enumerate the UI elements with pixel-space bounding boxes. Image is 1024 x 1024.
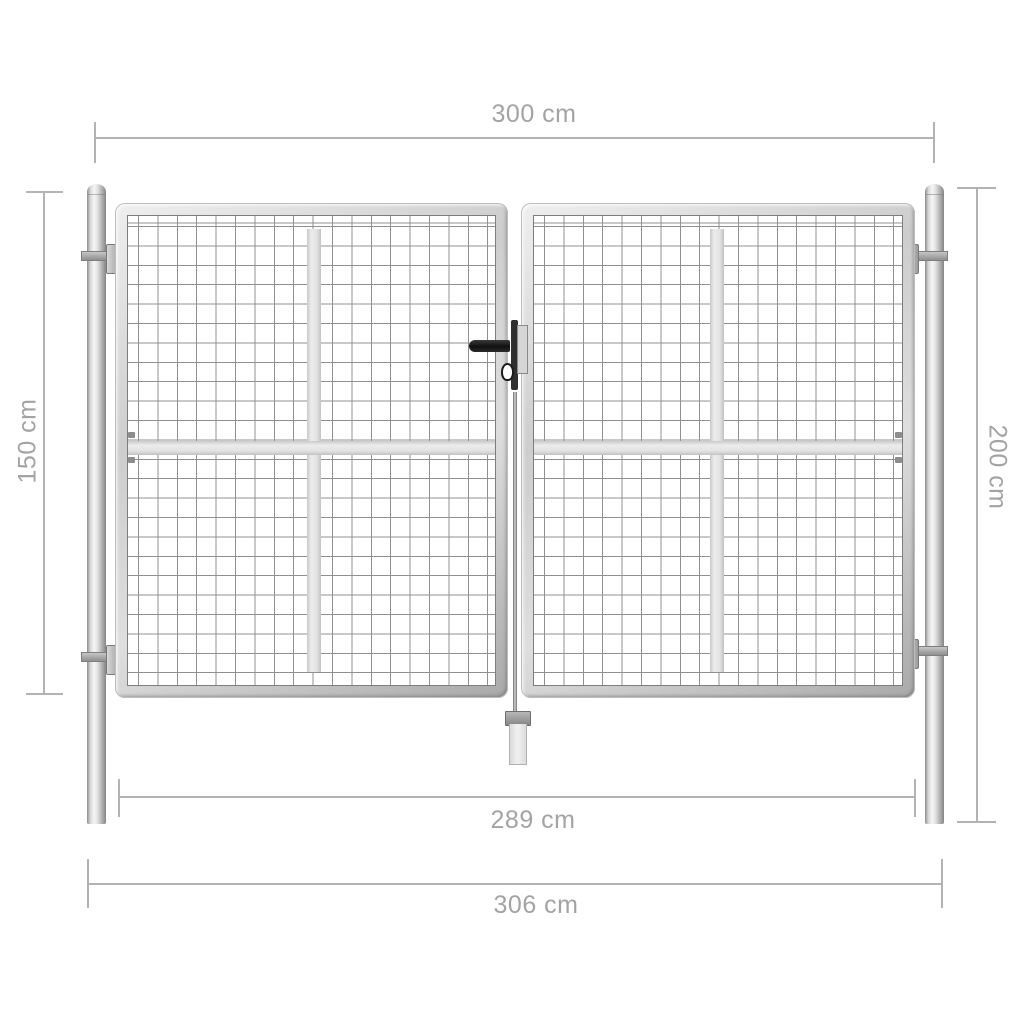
dim-label-inner-width: 289 cm xyxy=(491,806,576,835)
left-leaf-mesh xyxy=(127,215,496,686)
right-gate-leaf xyxy=(521,203,915,698)
dim-line-left xyxy=(43,192,45,694)
dim-line-inner xyxy=(119,796,916,798)
right-leaf-brace-clamp-top xyxy=(895,432,902,438)
dim-tick-outer-right xyxy=(941,859,943,908)
right-leaf-mesh xyxy=(533,215,903,686)
left-leaf-brace-clamp-bottom xyxy=(128,457,135,463)
right-post-cap-seam xyxy=(926,194,943,195)
dim-tick-top-left xyxy=(94,122,96,163)
dim-line-top xyxy=(95,137,934,139)
dim-label-top-width: 300 cm xyxy=(492,100,577,129)
dim-tick-inner-right xyxy=(914,779,916,817)
dim-tick-left-bottom xyxy=(26,693,63,695)
dim-tick-right-bottom xyxy=(957,821,996,823)
dim-tick-inner-left xyxy=(118,779,120,817)
ground-sleeve xyxy=(509,724,527,765)
dim-tick-right-top xyxy=(957,187,996,189)
drop-rod xyxy=(513,392,517,714)
left-post-cap-seam xyxy=(88,194,105,195)
dim-tick-outer-left xyxy=(87,859,89,908)
dim-tick-left-top xyxy=(26,191,63,193)
dim-line-outer xyxy=(88,883,943,885)
dim-label-gate-height: 150 cm xyxy=(14,399,43,484)
left-gate-leaf xyxy=(115,203,508,698)
right-leaf-horizontal-brace xyxy=(534,441,902,455)
left-post xyxy=(87,184,106,824)
dim-label-post-height: 200 cm xyxy=(983,425,1012,510)
right-post xyxy=(925,184,944,824)
left-leaf-horizontal-brace xyxy=(128,441,495,455)
gate-handle xyxy=(469,340,510,352)
gate-dimension-diagram: 300 cm 150 cm 200 cm 289 cm 306 cm xyxy=(0,0,1024,1024)
strike-plate xyxy=(517,325,528,374)
dim-label-outer-width: 306 cm xyxy=(494,891,579,920)
dim-line-right xyxy=(976,188,978,822)
right-leaf-brace-clamp-bottom xyxy=(895,457,902,463)
left-leaf-brace-clamp-top xyxy=(128,432,135,438)
keyhole xyxy=(501,363,514,381)
dim-tick-top-right xyxy=(933,122,935,163)
